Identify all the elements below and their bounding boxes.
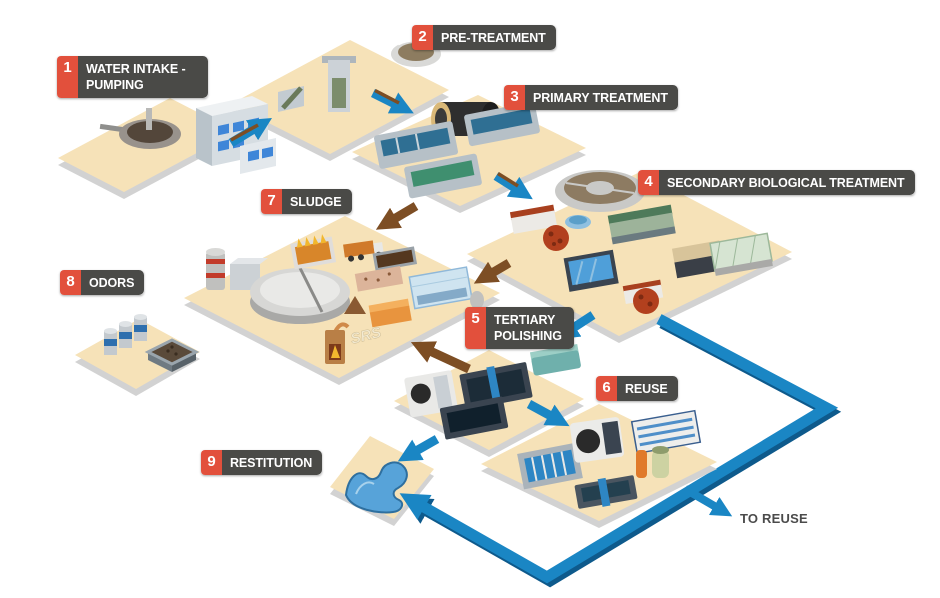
to-reuse-annotation: TO REUSE (740, 511, 808, 526)
scrubber-tower-3 (134, 314, 147, 341)
step-label-reuse: 6 REUSE (596, 376, 678, 401)
step-title: TERTIARY POLISHING (486, 307, 574, 349)
step-label-water-intake: 1 WATER INTAKE - PUMPING (57, 56, 208, 98)
step-label-pre-treatment: 2 PRE-TREATMENT (412, 25, 556, 50)
arrow-tertiary-to-restitution (416, 439, 437, 451)
digester (250, 268, 350, 324)
storage-silo (206, 248, 225, 290)
step-number: 6 (596, 376, 617, 401)
step-title: WATER INTAKE - PUMPING (78, 56, 208, 98)
biofilter-sphere-1 (543, 225, 569, 251)
uv-disinfection-unit (530, 344, 581, 376)
step-number: 5 (465, 307, 486, 349)
membrane-rack (632, 411, 701, 454)
water-treatment-process-diagram: SRS (0, 0, 940, 598)
step-title: ODORS (81, 270, 144, 295)
arrow-tertiary-to-sludge (430, 351, 469, 369)
step-label-secondary-treatment: 4 SECONDARY BIOLOGICAL TREATMENT (638, 170, 915, 195)
step-title: REUSE (617, 376, 678, 401)
step-number: 9 (201, 450, 222, 475)
step-label-sludge: 7 SLUDGE (261, 189, 352, 214)
step-number: 1 (57, 56, 78, 98)
scrubber-tower-1 (104, 328, 117, 355)
step-title: SECONDARY BIOLOGICAL TREATMENT (659, 170, 915, 195)
water-bowl (565, 215, 591, 229)
storage-tank (652, 446, 669, 478)
arrow-primary-to-sludge (394, 206, 416, 219)
step-number: 3 (504, 85, 525, 110)
step-title: SLUDGE (282, 189, 352, 214)
step-title: PRIMARY TREATMENT (525, 85, 678, 110)
step-number: 2 (412, 25, 433, 50)
step-label-restitution: 9 RESTITUTION (201, 450, 322, 475)
step-title: RESTITUTION (222, 450, 322, 475)
step-title: PRE-TREATMENT (433, 25, 556, 50)
scrubber-tower-2 (119, 321, 132, 348)
chlorination-column (636, 450, 647, 478)
drum-screen (569, 417, 624, 464)
step-number: 7 (261, 189, 282, 214)
step-number: 4 (638, 170, 659, 195)
step-number: 8 (60, 270, 81, 295)
step-label-odors: 8 ODORS (60, 270, 144, 295)
step-label-primary-treatment: 3 PRIMARY TREATMENT (504, 85, 678, 110)
biofilter-sphere-2 (633, 288, 659, 314)
aeration-tank (555, 170, 645, 212)
step-label-tertiary-polishing: 5 TERTIARY POLISHING (465, 307, 574, 349)
